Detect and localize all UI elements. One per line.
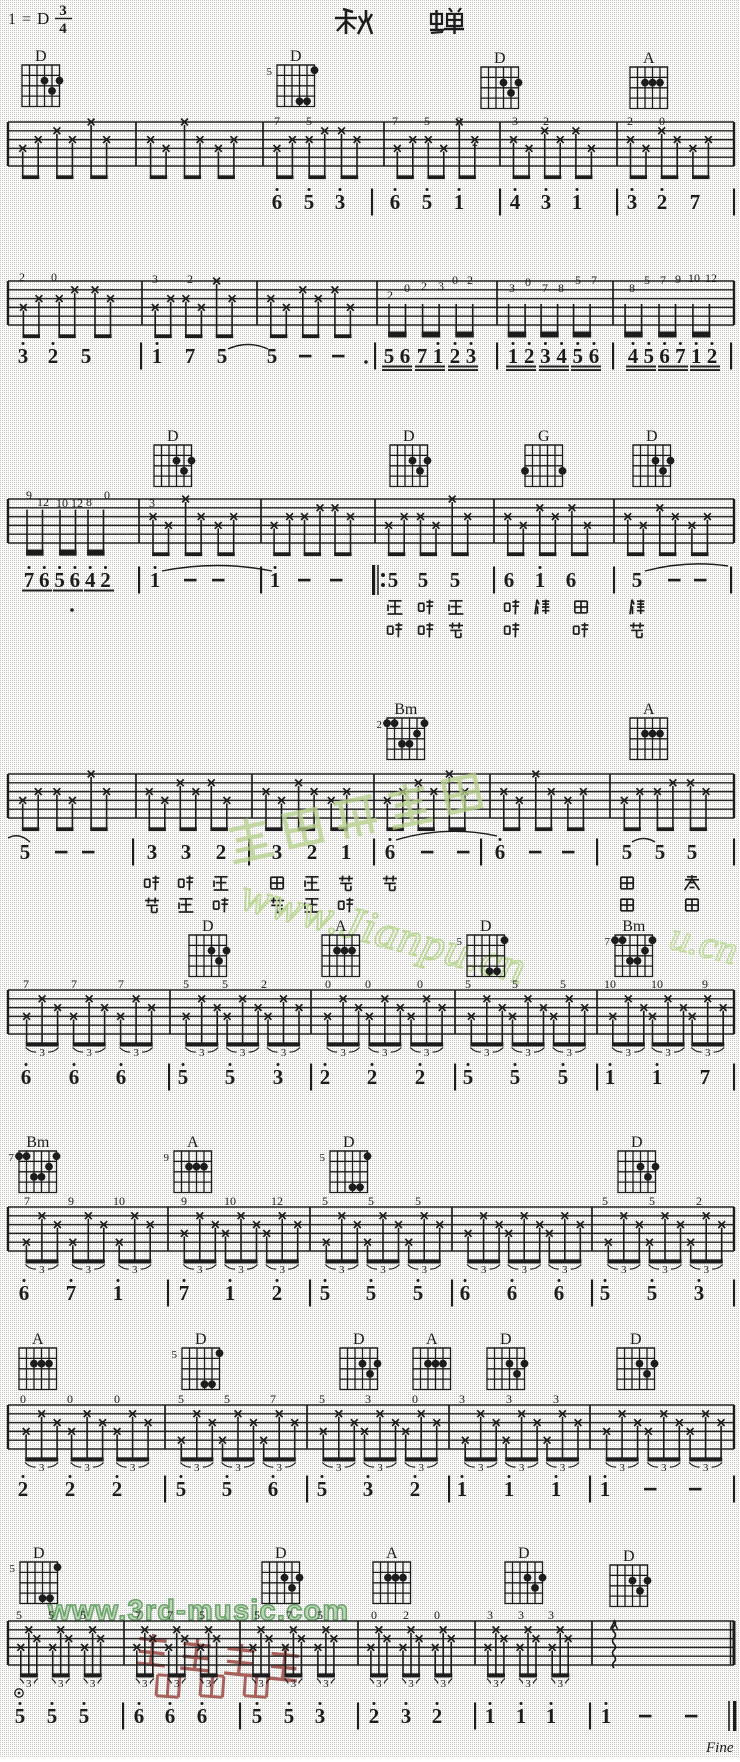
svg-text:9: 9: [164, 1152, 170, 1164]
svg-text:2: 2: [65, 1477, 76, 1501]
svg-text:3: 3: [132, 1264, 138, 1276]
svg-text:7: 7: [66, 1281, 77, 1305]
svg-text:10: 10: [224, 1194, 236, 1208]
svg-text:3: 3: [481, 1264, 487, 1276]
svg-text:5: 5: [388, 568, 399, 592]
svg-text:3: 3: [703, 1264, 709, 1276]
svg-text:3: 3: [194, 1462, 200, 1474]
svg-text:D: D: [275, 1545, 287, 1562]
svg-text:6: 6: [197, 1704, 208, 1728]
svg-text:3: 3: [199, 1047, 205, 1059]
svg-text:1: 1: [572, 190, 583, 214]
svg-text:3: 3: [238, 1264, 244, 1276]
svg-text:5: 5: [317, 1477, 328, 1501]
svg-text:5: 5: [81, 344, 92, 368]
svg-text:0: 0: [434, 1608, 440, 1622]
svg-text:3: 3: [86, 1047, 92, 1059]
svg-text:5: 5: [80, 1608, 86, 1622]
svg-text:1: 1: [652, 1065, 663, 1089]
svg-text:1: 1: [270, 568, 281, 592]
svg-text:5: 5: [575, 273, 581, 287]
svg-text:5: 5: [222, 977, 228, 991]
svg-text:7: 7: [71, 977, 77, 991]
svg-text:12: 12: [37, 495, 49, 509]
svg-text:5: 5: [320, 1152, 326, 1164]
svg-text:6: 6: [39, 568, 50, 592]
svg-text:5: 5: [176, 1477, 187, 1501]
svg-text:5: 5: [320, 1281, 331, 1305]
svg-text:2: 2: [19, 270, 25, 284]
svg-text:Bm: Bm: [26, 1134, 50, 1151]
svg-text:2: 2: [403, 1608, 409, 1622]
svg-text:4: 4: [85, 568, 96, 592]
svg-text:7: 7: [270, 1392, 276, 1406]
svg-text:3: 3: [487, 1608, 493, 1622]
svg-text:D: D: [500, 1331, 512, 1348]
svg-text:2: 2: [524, 344, 535, 368]
svg-text:5: 5: [322, 1194, 328, 1208]
svg-text:5: 5: [366, 1281, 377, 1305]
svg-text:5: 5: [172, 1349, 178, 1361]
svg-text:3: 3: [206, 1678, 212, 1690]
svg-text:3: 3: [466, 344, 477, 368]
svg-text:5: 5: [450, 568, 461, 592]
svg-text:7: 7: [660, 273, 666, 287]
svg-text:5: 5: [647, 1281, 658, 1305]
svg-text:0: 0: [365, 977, 371, 991]
svg-text:5: 5: [254, 1608, 260, 1622]
svg-text:5: 5: [415, 1194, 421, 1208]
svg-text:10: 10: [56, 496, 68, 510]
svg-text:7: 7: [417, 344, 428, 368]
svg-text:3: 3: [39, 1047, 45, 1059]
svg-text:6: 6: [566, 568, 577, 592]
svg-text:1: 1: [605, 1065, 616, 1089]
svg-text:5: 5: [418, 568, 429, 592]
svg-text:3: 3: [174, 1678, 180, 1690]
svg-text:3: 3: [281, 1047, 287, 1059]
svg-text:G: G: [538, 428, 550, 445]
svg-text:3: 3: [377, 1462, 383, 1474]
svg-text:3: 3: [626, 1047, 632, 1059]
svg-text:3: 3: [363, 1477, 374, 1501]
svg-text:D: D: [37, 9, 49, 28]
svg-text:2: 2: [657, 190, 668, 214]
svg-text:2: 2: [472, 135, 478, 149]
svg-text:8: 8: [86, 495, 92, 509]
svg-text:0: 0: [404, 281, 410, 295]
svg-text:7: 7: [118, 977, 124, 991]
svg-text:10: 10: [113, 1194, 125, 1208]
svg-text:A: A: [643, 50, 655, 67]
svg-text:2: 2: [387, 288, 393, 302]
svg-text:3: 3: [424, 1047, 430, 1059]
svg-text:5: 5: [267, 344, 278, 368]
svg-text:2: 2: [432, 1704, 443, 1728]
svg-text:3: 3: [553, 1392, 559, 1406]
svg-text:5: 5: [183, 977, 189, 991]
svg-text:3: 3: [705, 1047, 711, 1059]
svg-text:D: D: [494, 50, 506, 67]
svg-text:5: 5: [573, 344, 584, 368]
svg-text:2: 2: [377, 719, 383, 731]
svg-text:5: 5: [687, 840, 698, 864]
svg-text:6: 6: [495, 840, 506, 864]
svg-text:7: 7: [167, 1608, 173, 1622]
svg-text:D: D: [630, 1331, 642, 1348]
svg-text:7: 7: [185, 344, 196, 368]
svg-text:7: 7: [179, 1281, 190, 1305]
svg-text:5: 5: [267, 66, 273, 78]
svg-text:3: 3: [521, 1264, 527, 1276]
svg-text:2: 2: [367, 1065, 378, 1089]
svg-text:3: 3: [566, 1047, 572, 1059]
svg-text:5: 5: [422, 190, 433, 214]
svg-text:3: 3: [627, 190, 638, 214]
svg-text:D: D: [403, 428, 415, 445]
svg-text:5: 5: [644, 273, 650, 287]
svg-text:3: 3: [493, 1678, 499, 1690]
svg-text:12: 12: [705, 271, 717, 285]
svg-text:3: 3: [376, 1678, 382, 1690]
svg-text:6: 6: [659, 344, 670, 368]
svg-text:2: 2: [216, 840, 227, 864]
svg-text:3: 3: [58, 1678, 64, 1690]
svg-text:3: 3: [382, 1047, 388, 1059]
svg-text:Bm: Bm: [622, 918, 646, 935]
svg-text:3: 3: [291, 1678, 297, 1690]
svg-text:6: 6: [554, 1281, 565, 1305]
svg-text:3: 3: [86, 1264, 92, 1276]
svg-text:3: 3: [703, 1462, 709, 1474]
svg-text:D: D: [33, 1545, 45, 1562]
svg-text:0: 0: [20, 1392, 26, 1406]
svg-text:D: D: [290, 48, 302, 65]
svg-text:3: 3: [133, 1047, 139, 1059]
svg-text:7: 7: [9, 1152, 15, 1164]
svg-text:5: 5: [644, 344, 655, 368]
svg-text:5: 5: [558, 1065, 569, 1089]
svg-text:3: 3: [509, 281, 515, 295]
svg-text:10: 10: [604, 977, 616, 991]
svg-text:5: 5: [560, 977, 566, 991]
svg-text:3: 3: [152, 272, 158, 286]
svg-text:3: 3: [336, 1462, 342, 1474]
svg-text:5: 5: [199, 1608, 205, 1622]
svg-text:D: D: [480, 918, 492, 935]
svg-text:0: 0: [371, 1608, 377, 1622]
svg-text:3: 3: [484, 1047, 490, 1059]
svg-text:4: 4: [59, 21, 67, 37]
svg-text:3: 3: [339, 1264, 345, 1276]
svg-text:1: 1: [508, 344, 519, 368]
svg-text:1: 1: [341, 840, 352, 864]
svg-text:D: D: [518, 1545, 530, 1562]
svg-text:6: 6: [385, 840, 396, 864]
svg-text:2: 2: [187, 272, 193, 286]
svg-text:5: 5: [602, 1194, 608, 1208]
svg-text:3: 3: [518, 1608, 524, 1622]
svg-text:3: 3: [258, 1678, 264, 1690]
svg-text:5: 5: [284, 1704, 295, 1728]
svg-text:4: 4: [510, 190, 521, 214]
svg-text:D: D: [167, 428, 179, 445]
svg-text:3: 3: [315, 1704, 326, 1728]
svg-text:A: A: [386, 1545, 398, 1562]
svg-text:D: D: [35, 48, 47, 65]
svg-text:7: 7: [286, 1608, 292, 1622]
svg-text:3: 3: [39, 1264, 45, 1276]
svg-text:6: 6: [69, 1065, 80, 1089]
svg-text:1: 1: [504, 1477, 515, 1501]
svg-text:5: 5: [424, 114, 430, 128]
svg-text:9: 9: [26, 488, 32, 502]
svg-text:5: 5: [10, 1563, 16, 1575]
svg-text:2: 2: [415, 1065, 426, 1089]
svg-text:3: 3: [181, 840, 192, 864]
svg-text:3: 3: [540, 344, 551, 368]
svg-text:3: 3: [525, 1678, 531, 1690]
svg-text:1: 1: [457, 1477, 468, 1501]
svg-text:5: 5: [510, 1065, 521, 1089]
svg-text:5: 5: [413, 1281, 424, 1305]
svg-text:5: 5: [384, 344, 395, 368]
svg-text:4: 4: [628, 344, 639, 368]
svg-text:3: 3: [665, 1047, 671, 1059]
svg-text:7: 7: [392, 114, 398, 128]
svg-text:0: 0: [325, 977, 331, 991]
svg-text:5: 5: [600, 1281, 611, 1305]
svg-text:7: 7: [135, 1608, 141, 1622]
svg-text:3: 3: [197, 1264, 203, 1276]
svg-text:3: 3: [512, 114, 518, 128]
svg-text:Fine: Fine: [705, 1740, 734, 1756]
svg-text:5: 5: [632, 568, 643, 592]
svg-text:3: 3: [39, 1462, 45, 1474]
svg-text:4: 4: [556, 344, 567, 368]
svg-text:3: 3: [149, 496, 155, 510]
svg-text:3: 3: [323, 1678, 329, 1690]
svg-text:D: D: [353, 1331, 365, 1348]
svg-text:3: 3: [421, 1264, 427, 1276]
svg-text:5: 5: [217, 344, 228, 368]
svg-text:3: 3: [142, 1678, 148, 1690]
svg-text:1: 1: [225, 1281, 236, 1305]
svg-text:2: 2: [112, 1477, 123, 1501]
svg-text:D: D: [343, 1134, 355, 1151]
svg-text:D: D: [623, 1548, 635, 1565]
svg-text:5: 5: [463, 1065, 474, 1089]
svg-text:3: 3: [456, 114, 462, 128]
svg-text:A: A: [187, 1134, 199, 1151]
svg-text:9: 9: [675, 272, 681, 286]
svg-text:3: 3: [621, 1264, 627, 1276]
svg-text:6: 6: [507, 1281, 518, 1305]
svg-text:6: 6: [400, 344, 411, 368]
svg-text:6: 6: [390, 190, 401, 214]
svg-text:A: A: [643, 701, 655, 718]
svg-text:5: 5: [48, 1608, 54, 1622]
svg-text:0: 0: [417, 977, 423, 991]
svg-text:2: 2: [18, 1477, 29, 1501]
svg-text:0: 0: [104, 488, 110, 502]
svg-text:1: 1: [551, 1477, 562, 1501]
svg-text:3: 3: [459, 1392, 465, 1406]
svg-text:A: A: [426, 1331, 438, 1348]
svg-text:7: 7: [23, 977, 29, 991]
svg-text:3: 3: [506, 1392, 512, 1406]
svg-text:6: 6: [134, 1704, 145, 1728]
svg-text:5: 5: [54, 568, 65, 592]
svg-text:5: 5: [317, 1608, 323, 1622]
svg-text:D: D: [646, 428, 658, 445]
svg-text:5: 5: [368, 1194, 374, 1208]
svg-text:3: 3: [560, 1462, 566, 1474]
svg-text:3: 3: [279, 1264, 285, 1276]
svg-text:3: 3: [478, 1462, 484, 1474]
svg-text:0: 0: [452, 273, 458, 287]
svg-text:3: 3: [401, 1704, 412, 1728]
svg-text:2: 2: [48, 344, 59, 368]
svg-text:0: 0: [114, 1392, 120, 1406]
svg-text:7: 7: [24, 1194, 30, 1208]
svg-text:3: 3: [147, 840, 158, 864]
svg-text:6: 6: [460, 1281, 471, 1305]
svg-text:6: 6: [589, 344, 600, 368]
svg-text:1: 1: [454, 190, 465, 214]
svg-text:3: 3: [548, 1608, 554, 1622]
svg-text:9: 9: [702, 977, 708, 991]
svg-text:6: 6: [272, 190, 283, 214]
svg-text:1: 1: [152, 344, 163, 368]
svg-text:1: 1: [113, 1281, 124, 1305]
svg-text:10: 10: [651, 977, 663, 991]
svg-text:0: 0: [659, 114, 665, 128]
svg-text:A: A: [335, 918, 347, 935]
svg-text:Bm: Bm: [394, 701, 418, 718]
svg-text:0: 0: [412, 1392, 418, 1406]
svg-text:5: 5: [512, 977, 518, 991]
svg-text:3: 3: [661, 1462, 667, 1474]
svg-text:D: D: [631, 1134, 643, 1151]
svg-text:2: 2: [272, 1281, 283, 1305]
svg-text:5: 5: [319, 1392, 325, 1406]
svg-text:5: 5: [178, 1392, 184, 1406]
svg-text:3: 3: [525, 1047, 531, 1059]
svg-text:7: 7: [24, 568, 35, 592]
svg-text:7: 7: [675, 344, 686, 368]
svg-text:8: 8: [629, 281, 635, 295]
svg-text:5: 5: [79, 1704, 90, 1728]
svg-text:7: 7: [591, 273, 597, 287]
svg-text:7: 7: [542, 281, 548, 295]
svg-text:9: 9: [181, 1194, 187, 1208]
svg-text:3: 3: [26, 1678, 32, 1690]
svg-text:D: D: [202, 918, 214, 935]
svg-text:3: 3: [235, 1462, 241, 1474]
svg-text:3: 3: [335, 190, 346, 214]
svg-text:5: 5: [304, 190, 315, 214]
svg-text:3: 3: [694, 1281, 705, 1305]
svg-text:5: 5: [225, 1065, 236, 1089]
svg-text:2: 2: [320, 1065, 331, 1089]
svg-text:1: 1: [691, 344, 702, 368]
svg-text:5: 5: [224, 1392, 230, 1406]
svg-text:3: 3: [619, 1462, 625, 1474]
svg-text:1: 1: [600, 1477, 611, 1501]
svg-text:2: 2: [369, 1704, 380, 1728]
svg-text:3: 3: [418, 1462, 424, 1474]
svg-text:A: A: [32, 1331, 44, 1348]
svg-text:5: 5: [20, 840, 31, 864]
svg-text:2: 2: [261, 977, 267, 991]
svg-text:2: 2: [410, 1477, 421, 1501]
svg-text:3: 3: [519, 1462, 525, 1474]
svg-text:3: 3: [240, 1047, 246, 1059]
svg-text:2: 2: [450, 344, 461, 368]
svg-text:3: 3: [408, 1678, 414, 1690]
svg-text:6: 6: [268, 1477, 279, 1501]
svg-text:1: 1: [516, 1704, 527, 1728]
svg-text:0: 0: [67, 1392, 73, 1406]
svg-text:2: 2: [467, 273, 473, 287]
svg-text:3: 3: [130, 1462, 136, 1474]
svg-text:5: 5: [47, 1704, 58, 1728]
svg-text:1: 1: [535, 568, 546, 592]
svg-text:5: 5: [622, 840, 633, 864]
svg-text:6: 6: [116, 1065, 127, 1089]
svg-text:8: 8: [558, 281, 564, 295]
svg-text:2: 2: [421, 279, 427, 293]
svg-text:5: 5: [178, 1065, 189, 1089]
svg-text:7: 7: [605, 936, 611, 948]
svg-text:5: 5: [655, 840, 666, 864]
svg-text:D: D: [195, 1331, 207, 1348]
svg-text:3: 3: [276, 1462, 282, 1474]
svg-text:6: 6: [165, 1704, 176, 1728]
svg-text:7: 7: [690, 190, 701, 214]
svg-text:1: 1: [601, 1704, 612, 1728]
svg-text:1: 1: [8, 11, 16, 28]
svg-text:6: 6: [21, 1065, 32, 1089]
svg-text:2: 2: [627, 114, 633, 128]
svg-text:10: 10: [688, 271, 700, 285]
svg-text:3: 3: [340, 1047, 346, 1059]
svg-text:2: 2: [707, 344, 718, 368]
svg-text:3: 3: [438, 279, 444, 293]
svg-text:5: 5: [222, 1477, 233, 1501]
svg-text:6: 6: [19, 1281, 30, 1305]
svg-text:2: 2: [100, 568, 111, 592]
svg-text:1: 1: [546, 1704, 557, 1728]
svg-text:1: 1: [150, 568, 161, 592]
svg-text:3: 3: [90, 1678, 96, 1690]
svg-text:3: 3: [557, 1678, 563, 1690]
svg-text:12: 12: [71, 496, 83, 510]
svg-text:5: 5: [252, 1704, 263, 1728]
svg-text:2: 2: [696, 1194, 702, 1208]
svg-text:3: 3: [18, 344, 29, 368]
svg-text:1: 1: [485, 1704, 496, 1728]
svg-text:5: 5: [16, 1608, 22, 1622]
svg-text:7: 7: [700, 1065, 711, 1089]
svg-text:3: 3: [541, 190, 552, 214]
svg-text:3: 3: [662, 1264, 668, 1276]
svg-text:3: 3: [59, 3, 67, 19]
svg-text:3: 3: [84, 1462, 90, 1474]
svg-text:3: 3: [365, 1392, 371, 1406]
svg-text:5: 5: [457, 936, 463, 948]
